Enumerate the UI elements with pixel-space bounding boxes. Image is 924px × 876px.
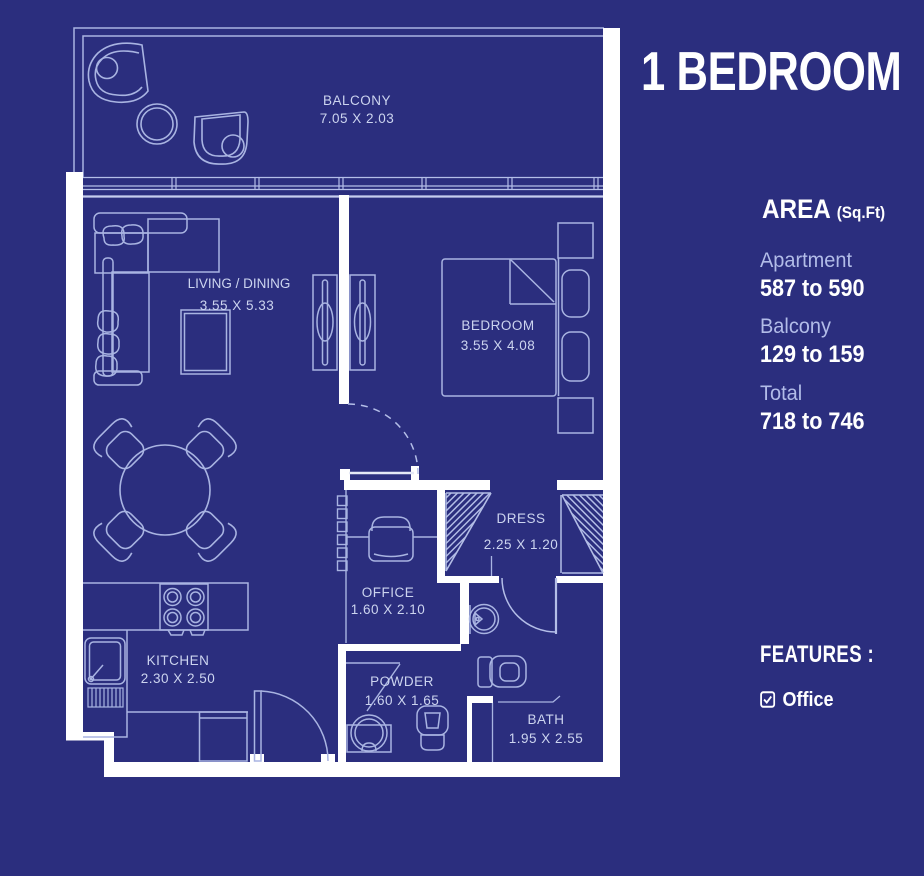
svg-text:1.60 X 1.65: 1.60 X 1.65 xyxy=(365,693,440,708)
svg-text:POWDER: POWDER xyxy=(370,674,434,689)
svg-text:BALCONY: BALCONY xyxy=(323,93,391,108)
svg-text:DRESS: DRESS xyxy=(496,511,545,526)
svg-text:2.30 X 2.50: 2.30 X 2.50 xyxy=(141,671,216,686)
svg-text:KITCHEN: KITCHEN xyxy=(147,653,210,668)
svg-text:3.55 X 4.08: 3.55 X 4.08 xyxy=(461,338,536,353)
svg-text:3.55 X 5.33: 3.55 X 5.33 xyxy=(200,298,275,313)
svg-text:BEDROOM: BEDROOM xyxy=(461,318,534,333)
svg-text:2.25 X 1.20: 2.25 X 1.20 xyxy=(484,537,559,552)
svg-text:BATH: BATH xyxy=(527,712,564,727)
svg-text:LIVING / DINING: LIVING / DINING xyxy=(188,276,291,291)
svg-text:1.60 X 2.10: 1.60 X 2.10 xyxy=(351,602,426,617)
svg-text:OFFICE: OFFICE xyxy=(362,585,415,600)
svg-text:7.05 X 2.03: 7.05 X 2.03 xyxy=(320,111,395,126)
svg-text:1.95 X 2.55: 1.95 X 2.55 xyxy=(509,731,584,746)
